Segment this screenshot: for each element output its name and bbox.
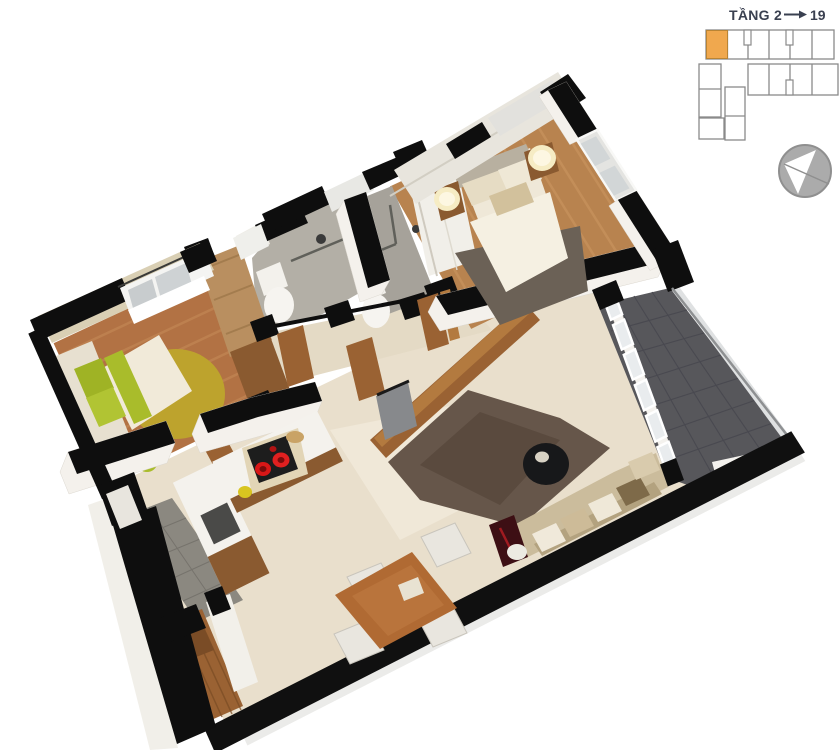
svg-text:19: 19 [810,7,826,23]
svg-text:TẦNG 2: TẦNG 2 [729,7,782,23]
